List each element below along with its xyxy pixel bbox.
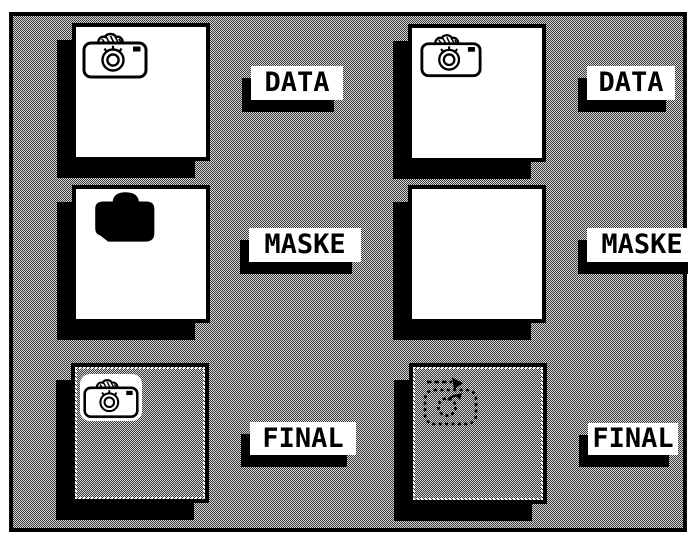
image-tile-maske-right[interactable] (408, 185, 546, 323)
label-final-left: FINAL (250, 422, 356, 455)
camera-outline-icon (82, 31, 148, 79)
label-final-right: FINAL (588, 423, 678, 455)
camera-solid-icon (87, 190, 161, 246)
camera-outline-icon (420, 32, 482, 78)
icon-backplate (80, 374, 142, 421)
image-tile-maske-left[interactable] (72, 185, 210, 323)
label-maske-left: MASKE (249, 228, 361, 262)
label-data-left: DATA (251, 66, 343, 100)
label-data-right: DATA (587, 66, 675, 100)
image-tile-final-left[interactable] (71, 363, 209, 503)
camera-outline-badge-icon (83, 377, 139, 419)
camera-dotted-arrow-icon (421, 376, 485, 430)
label-maske-right: MASKE (587, 228, 697, 262)
image-tile-final-right[interactable] (409, 363, 547, 504)
image-tile-data-right[interactable] (408, 24, 546, 162)
image-tile-data-left[interactable] (72, 23, 210, 161)
